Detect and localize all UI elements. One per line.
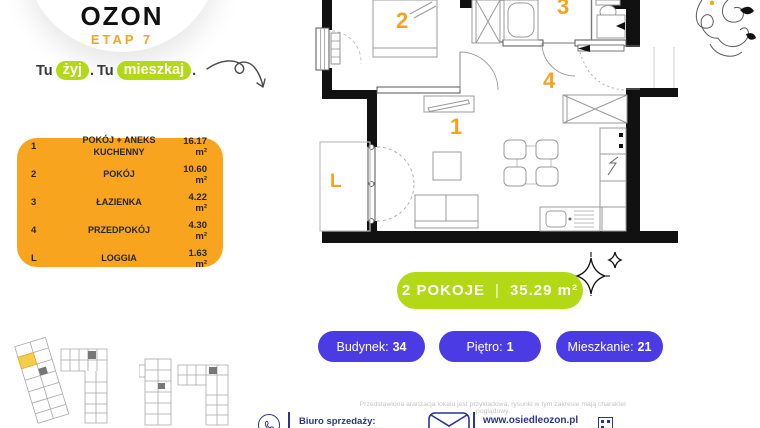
website-link[interactable]: www.osiedleozon.pl (483, 415, 578, 426)
legend-room-name: POKÓJ (61, 169, 177, 180)
disclaimer-text: Przedstawiona aranżacja lokalu jest przy… (351, 401, 635, 415)
legend-row: 3 ŁAZIENKA 4.22 m² (17, 189, 223, 217)
legend-row: 2 POKÓJ 10.60 m² (17, 161, 223, 189)
etap-label: ETAP 7 (0, 32, 244, 47)
room-legend-card: 1 POKÓJ + ANEKS KUCHENNY 16.17 m² 2 POKÓ… (17, 138, 223, 267)
summary-separator: | (495, 282, 500, 299)
badge-label: Mieszkanie: (568, 340, 634, 354)
room-label-1: 1 (450, 116, 462, 138)
legend-room-no: 2 (31, 169, 61, 180)
corner-doodle-icon (688, 0, 760, 64)
legend-room-area: 4.22 m² (177, 192, 207, 214)
room-label-4: 4 (543, 70, 555, 92)
site-plan-2 (58, 341, 116, 427)
footer-divider (288, 412, 290, 428)
envelope-icon (428, 412, 470, 428)
phone-icon (258, 414, 280, 428)
floor-plan (300, 0, 690, 248)
legend-room-no: L (31, 253, 61, 264)
site-plan-3 (139, 357, 177, 428)
legend-room-name: POKÓJ + ANEKS KUCHENNY (61, 135, 177, 158)
sales-office-label: Biuro sprzedaży: (299, 416, 376, 427)
legend-room-area: 16.17 m² (177, 136, 207, 158)
badge-label: Budynek: (336, 340, 388, 354)
site-plan-4 (176, 361, 232, 428)
room-label-3: 3 (557, 0, 569, 18)
arrow-doodle-icon (205, 53, 267, 99)
legend-room-area: 10.60 m² (177, 164, 207, 186)
tagline-dot: . (90, 63, 94, 79)
legend-row: 4 PRZEDPOKÓJ 4.30 m² (17, 217, 223, 245)
room-label-2: 2 (396, 10, 408, 32)
tagline: Tu żyj . Tu mieszkaj . (36, 61, 196, 80)
legend-row: L LOGGIA 1.63 m² (17, 245, 223, 273)
qr-code (598, 417, 613, 428)
rooms-count: 2 POKOJE (402, 282, 485, 299)
badge-value: 21 (638, 340, 652, 354)
legend-row: 1 POKÓJ + ANEKS KUCHENNY 16.17 m² (17, 132, 223, 161)
legend-room-name: ŁAZIENKA (61, 197, 177, 208)
logo-text: OZON (0, 1, 244, 32)
badge-label: Piętro: (466, 340, 502, 354)
tagline-pill: żyj (56, 61, 89, 80)
badge-value: 1 (507, 340, 514, 354)
legend-room-name: LOGGIA (61, 253, 177, 264)
entrance-door (578, 45, 624, 90)
badge-building: Budynek: 34 (318, 331, 425, 362)
badge-apartment: Mieszkanie: 21 (556, 331, 663, 362)
interior-doors (460, 43, 575, 90)
legend-room-area: 1.63 m² (177, 248, 207, 270)
legend-room-name: PRZEDPOKÓJ (61, 225, 177, 236)
legend-room-no: 3 (31, 197, 61, 208)
furniture (373, 0, 627, 231)
tagline-pill: mieszkaj (117, 61, 191, 80)
badge-floor: Piętro: 1 (439, 331, 541, 362)
legend-room-no: 1 (31, 141, 61, 152)
room-label-loggia: L (330, 172, 342, 191)
tagline-word: Tu (97, 63, 114, 79)
tagline-word: Tu (36, 63, 53, 79)
legend-room-area: 4.30 m² (177, 220, 207, 242)
apartment-summary-pill: 2 POKOJE | 35.29 m² (397, 272, 583, 309)
tagline-dot: . (192, 63, 196, 79)
total-area: 35.29 m² (510, 282, 578, 299)
balcony-door (368, 145, 414, 224)
flyer-canvas: OZON ETAP 7 Tu żyj . Tu mieszkaj . 1 POK… (0, 0, 760, 428)
window (316, 28, 361, 70)
badge-value: 34 (393, 340, 407, 354)
loggia-outline (320, 142, 370, 231)
legend-room-no: 4 (31, 225, 61, 236)
footer-divider (473, 412, 475, 428)
